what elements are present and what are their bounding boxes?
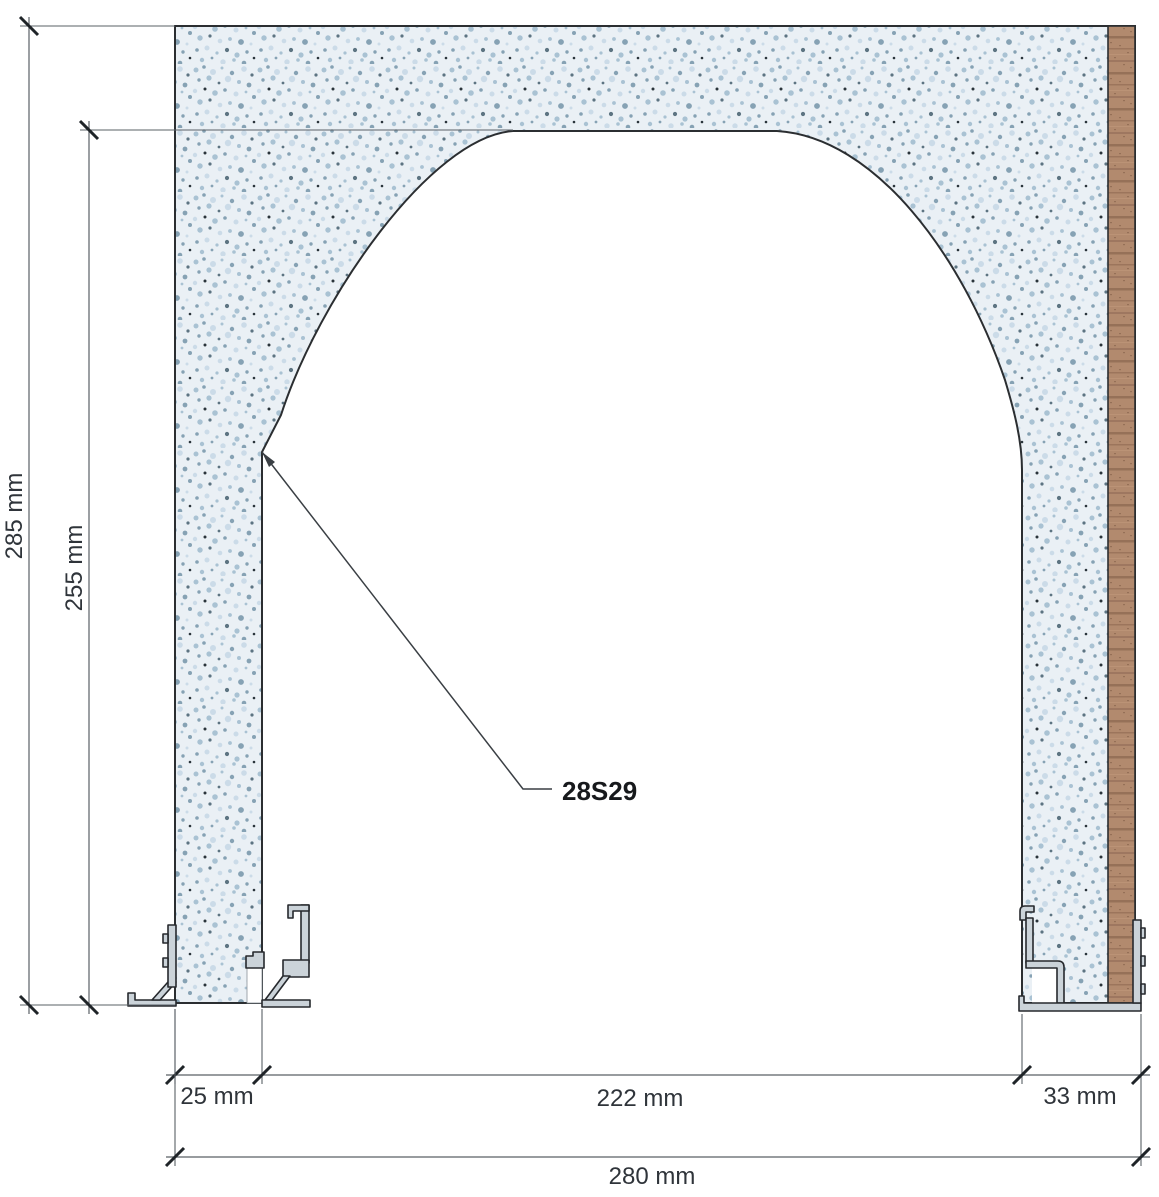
right-strip-clip-2	[1141, 956, 1145, 966]
right-corner-notch	[1032, 966, 1058, 1003]
left-sill-profile	[128, 925, 176, 1006]
left-track-step	[283, 960, 309, 977]
left-strip-tab-2	[163, 958, 168, 967]
leader-line	[262, 452, 552, 789]
dim-label-total-width: 280 mm	[609, 1163, 696, 1190]
dim-label-right-jamb: 33 mm	[1043, 1083, 1116, 1110]
left-wall-strip	[168, 925, 176, 987]
right-strip-clip-3	[1141, 984, 1145, 994]
left-track-diagonal	[265, 976, 290, 1000]
right-track-upright	[1026, 918, 1033, 963]
left-strip-tab-1	[163, 934, 168, 943]
right-strip-clip-1	[1141, 928, 1145, 938]
dim-bottom-chain: 25 mm 222 mm 33 mm	[166, 1009, 1150, 1166]
dim-label-left-jamb: 25 mm	[180, 1083, 253, 1110]
cross-section-drawing: 285 mm 255 mm 25 mm 222 mm 33 mm	[0, 0, 1159, 1197]
wood-veneer-strip	[1108, 26, 1135, 1003]
technical-drawing-canvas: 285 mm 255 mm 25 mm 222 mm 33 mm	[0, 0, 1159, 1197]
sill-and-track-profiles	[128, 905, 1145, 1011]
right-outer-strip	[1133, 920, 1141, 1003]
wall-section	[175, 26, 1135, 1003]
left-track-upright	[301, 905, 309, 963]
part-label: 28S29	[562, 776, 637, 806]
left-corner-slot	[247, 966, 262, 1003]
left-track-foot	[262, 1000, 310, 1007]
dim-label-opening-width: 222 mm	[597, 1085, 684, 1112]
part-leader: 28S29	[262, 452, 637, 806]
leader-arrowhead-icon	[262, 452, 275, 467]
dim-label-total-height: 285 mm	[1, 473, 28, 560]
stone-wall-with-arch-opening	[175, 26, 1135, 1003]
dim-total-height: 285 mm	[1, 17, 175, 1014]
dim-label-opening-height: 255 mm	[61, 525, 88, 612]
